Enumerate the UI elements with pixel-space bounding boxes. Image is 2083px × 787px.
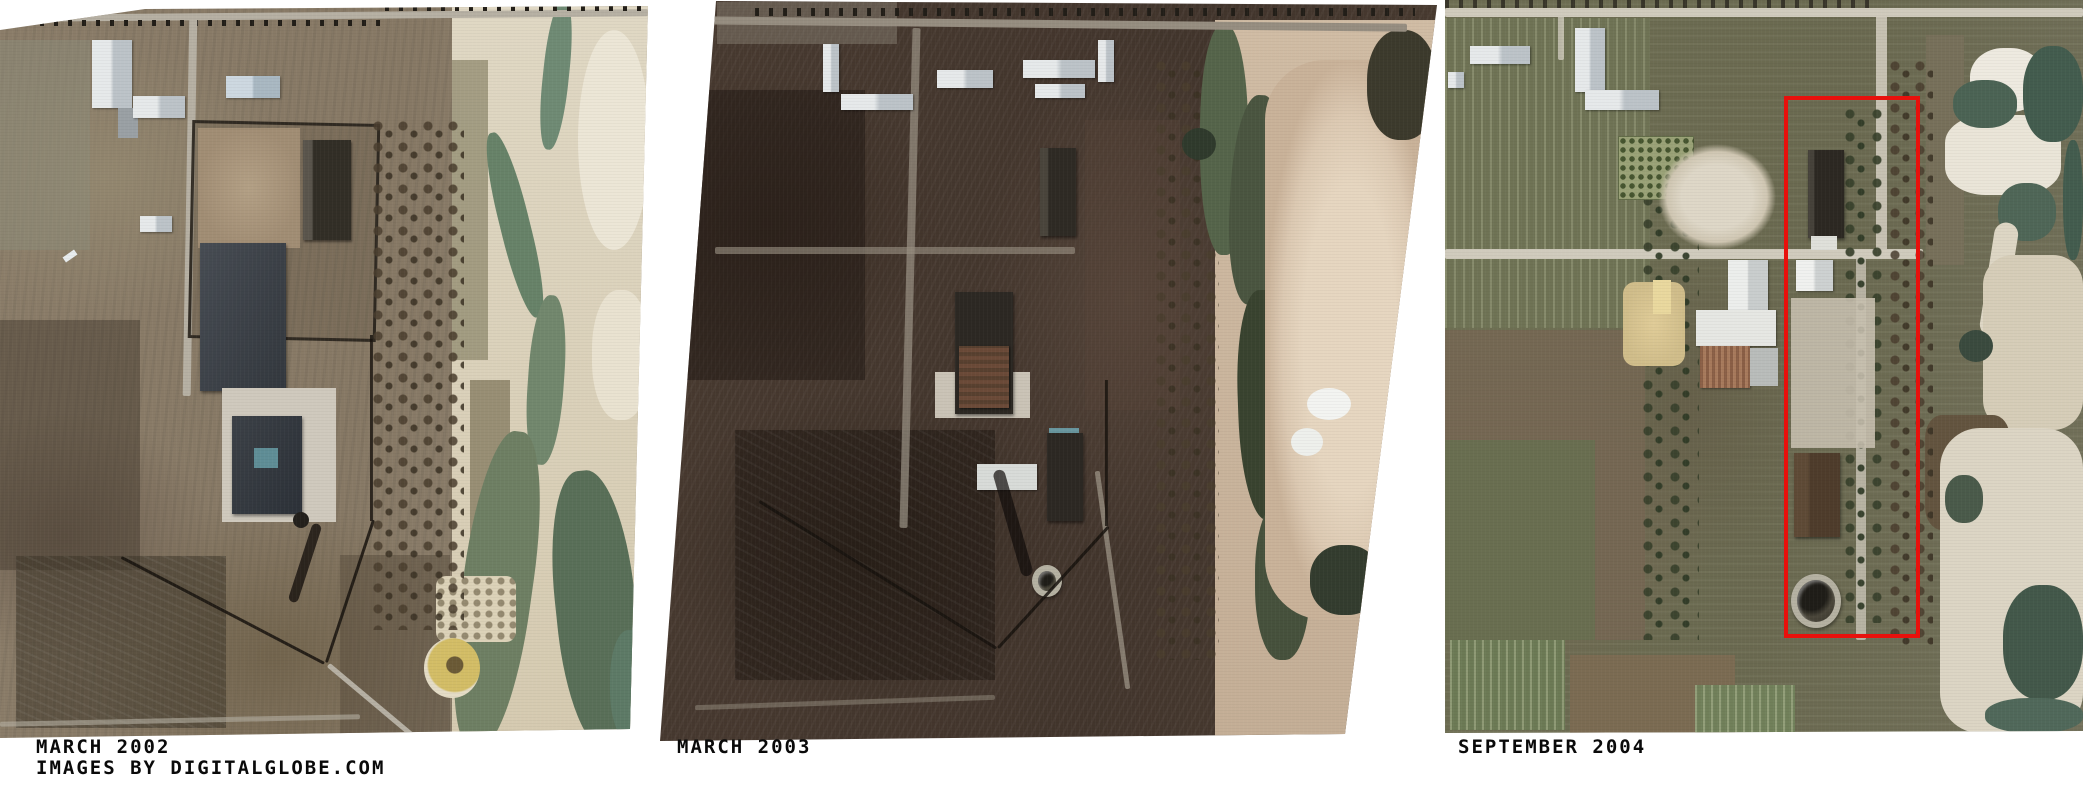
building (226, 76, 280, 98)
building (1098, 40, 1114, 82)
building (823, 44, 839, 92)
sandbar (592, 290, 650, 420)
reactor-roof (959, 346, 1009, 408)
caption-march-2002: MARCH 2002 (36, 736, 170, 758)
building (133, 96, 185, 118)
building (303, 140, 351, 240)
field (675, 90, 865, 380)
building (63, 250, 78, 263)
building (92, 40, 132, 108)
sandbar (578, 30, 650, 250)
road (1445, 8, 2083, 17)
satellite-image-september-2004 (1445, 0, 2083, 733)
water (2023, 46, 2083, 142)
water-channel (610, 630, 650, 740)
bridge-ties (385, 3, 648, 11)
field (0, 40, 90, 250)
building (1023, 60, 1095, 78)
figure-satellite-comparison: MARCH 2002 IMAGES BY DIGITALGLOBE.COM MA… (0, 0, 2083, 787)
building (1448, 72, 1464, 88)
caption-march-2003: MARCH 2003 (677, 736, 811, 758)
sand-shadow (1400, 420, 1445, 620)
water-pocket (2003, 585, 2083, 700)
sandbar (1265, 60, 1435, 620)
building (1035, 84, 1085, 98)
building (1575, 28, 1605, 92)
field (16, 556, 226, 728)
water-pocket (1310, 545, 1380, 615)
road (695, 695, 995, 710)
water (2063, 140, 2083, 260)
building (937, 70, 993, 88)
building (1040, 148, 1076, 236)
caption-september-2004: SEPTEMBER 2004 (1458, 736, 1646, 758)
road (715, 247, 1075, 254)
building (1750, 348, 1778, 386)
fence-line (1105, 380, 1108, 526)
field (1450, 640, 1565, 730)
water-pocket (1367, 30, 1437, 140)
water-pocket (1945, 475, 1983, 523)
pond (424, 638, 480, 698)
bare-ground (1653, 280, 1671, 314)
tree-line (1445, 0, 1875, 8)
satellite-image-march-2003 (655, 0, 1445, 747)
bare-ground (1658, 144, 1776, 250)
sandbar (1983, 255, 2083, 430)
building (1728, 260, 1768, 312)
reactor-building (200, 243, 286, 391)
water (1953, 80, 2017, 128)
snow-patch (1307, 388, 1351, 420)
satellite-image-march-2002 (0, 0, 650, 745)
bridge-ties (755, 8, 1415, 16)
stack-shadow (288, 522, 323, 603)
building (1470, 46, 1530, 64)
water (1985, 698, 2083, 733)
stack (293, 512, 309, 528)
tree-line (40, 20, 380, 26)
annotation-rectangle (1784, 96, 1920, 638)
field (735, 430, 995, 680)
building (254, 448, 278, 468)
building (1700, 346, 1750, 388)
credit-line: IMAGES BY DIGITALGLOBE.COM (36, 757, 385, 779)
road (1095, 471, 1131, 690)
building (140, 216, 172, 232)
field (1445, 440, 1595, 640)
building (1047, 433, 1083, 521)
field (1695, 685, 1795, 733)
tree-line (1641, 195, 1699, 640)
scrub-band (372, 120, 464, 630)
building (1585, 90, 1659, 110)
building (841, 94, 913, 110)
pond (1182, 128, 1216, 160)
field (0, 320, 140, 570)
snow-patch (1291, 428, 1323, 456)
pond (1959, 330, 1993, 362)
courtyard (198, 128, 300, 248)
road (1558, 12, 1564, 60)
building (1696, 310, 1776, 346)
